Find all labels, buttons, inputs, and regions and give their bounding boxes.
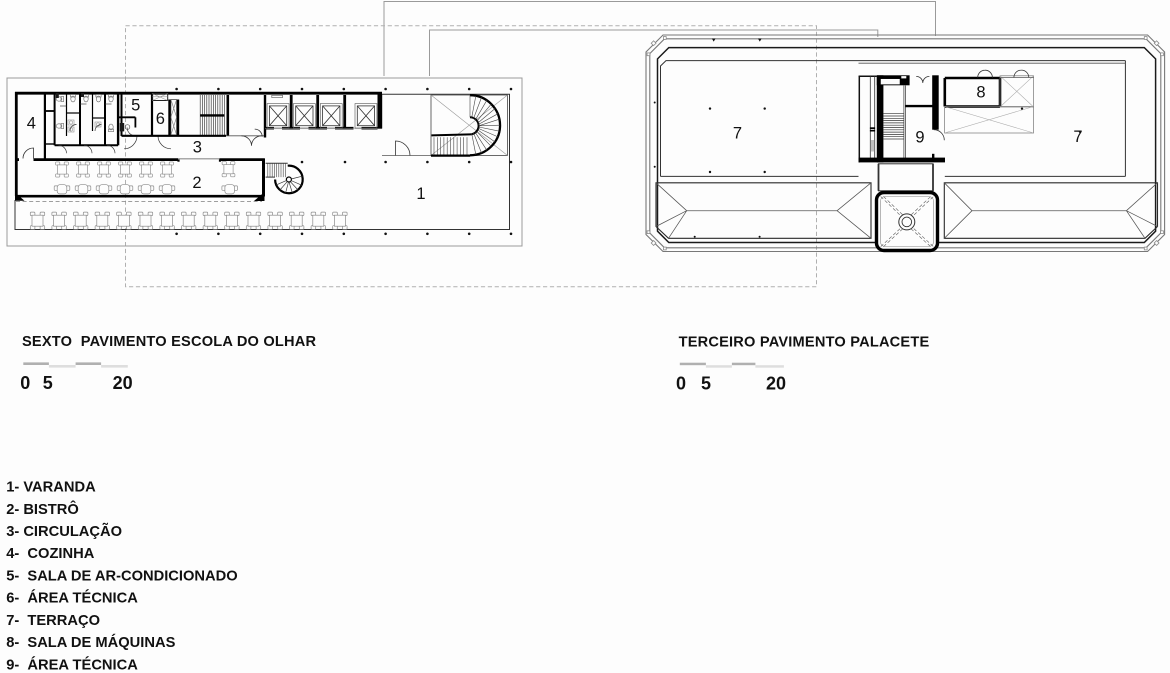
svg-text:4: 4 xyxy=(27,114,36,132)
svg-text:1- VARANDA: 1- VARANDA xyxy=(6,480,96,496)
svg-text:3: 3 xyxy=(193,139,202,157)
svg-text:5: 5 xyxy=(43,373,53,393)
svg-text:5- SALA DE AR-CONDICIONADO: 5- SALA DE AR-CONDICIONADO xyxy=(6,569,237,585)
svg-text:0: 0 xyxy=(20,373,30,393)
svg-text:0: 0 xyxy=(676,374,686,394)
svg-text:9- ÁREA TÉCNICA: 9- ÁREA TÉCNICA xyxy=(6,656,138,673)
svg-text:1: 1 xyxy=(416,185,425,203)
svg-text:2- BISTRÔ: 2- BISTRÔ xyxy=(6,500,79,518)
svg-text:5: 5 xyxy=(131,96,140,114)
svg-text:7: 7 xyxy=(733,125,742,143)
svg-text:3- CIRCULAÇÃO: 3- CIRCULAÇÃO xyxy=(6,522,122,540)
svg-text:6: 6 xyxy=(156,110,165,128)
svg-text:20: 20 xyxy=(766,374,786,394)
svg-text:7: 7 xyxy=(1073,128,1082,146)
svg-text:6- ÁREA TÉCNICA: 6- ÁREA TÉCNICA xyxy=(6,590,138,607)
svg-text:20: 20 xyxy=(113,373,133,393)
svg-text:8- SALA DE MÁQUINAS: 8- SALA DE MÁQUINAS xyxy=(6,634,175,651)
svg-text:SEXTO PAVIMENTO ESCOLA DO OLH: SEXTO PAVIMENTO ESCOLA DO OLHAR xyxy=(22,334,317,350)
svg-text:8: 8 xyxy=(976,84,985,102)
svg-text:2: 2 xyxy=(192,174,201,192)
svg-text:TERCEIRO PAVIMENTO PALACETE: TERCEIRO PAVIMENTO PALACETE xyxy=(679,335,930,351)
svg-text:7- TERRAÇO: 7- TERRAÇO xyxy=(6,613,100,629)
svg-text:4- COZINHA: 4- COZINHA xyxy=(6,546,95,562)
svg-text:9: 9 xyxy=(915,129,924,147)
svg-text:5: 5 xyxy=(701,374,711,394)
